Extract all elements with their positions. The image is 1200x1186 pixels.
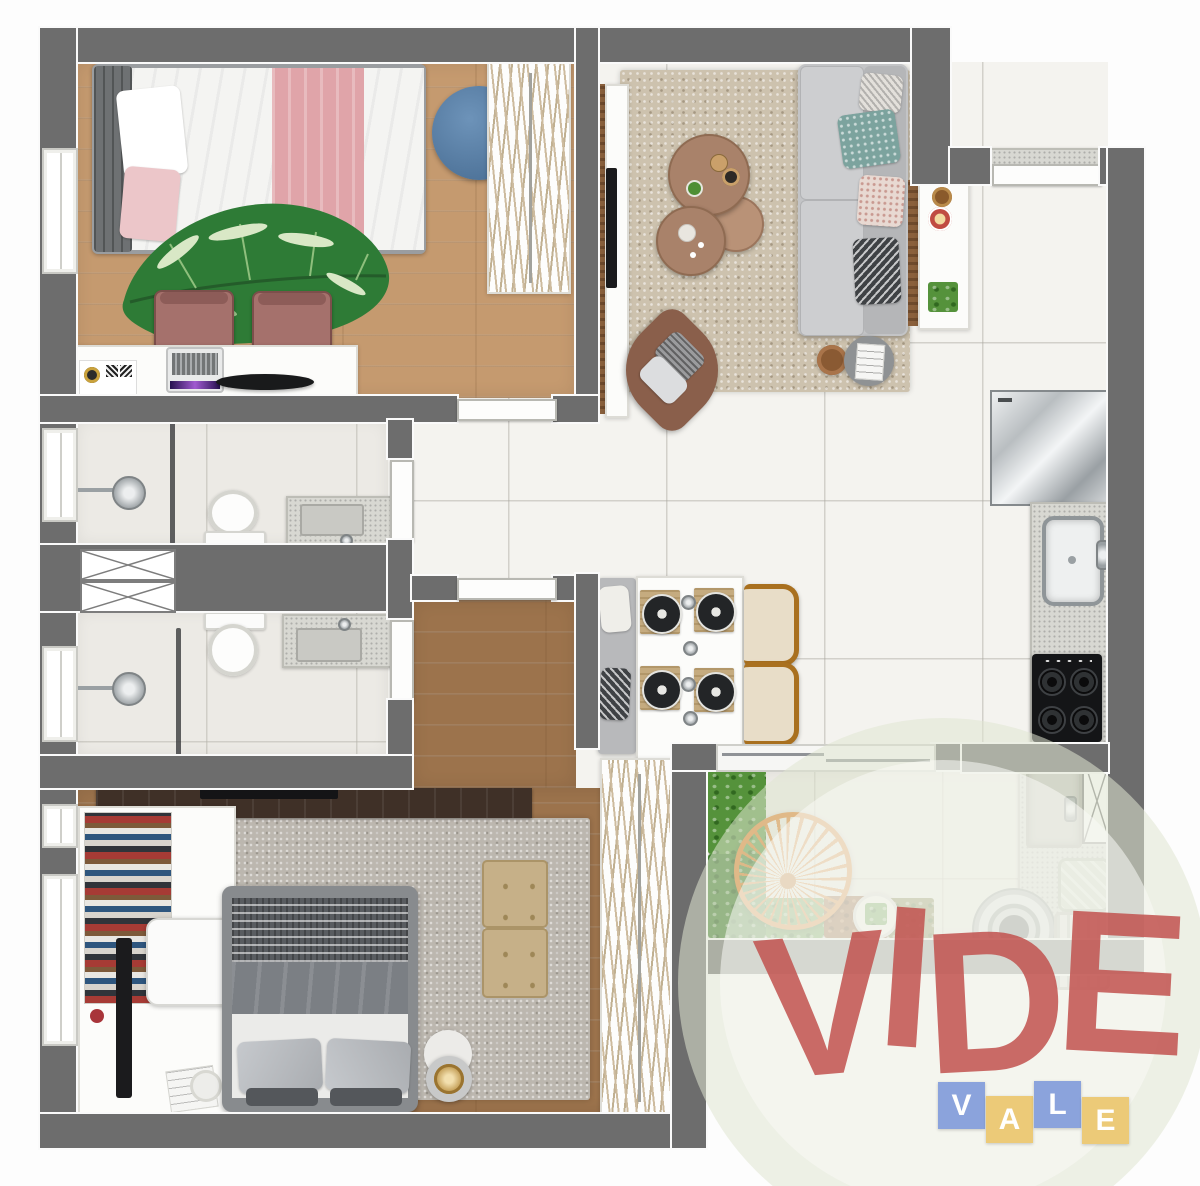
burner-1 [1038, 668, 1066, 696]
toilet-2-bowl [208, 624, 258, 676]
coffee-table-large [668, 134, 750, 216]
vale-letter-e: E [1095, 1104, 1115, 1138]
pattern-box-2 [120, 365, 132, 377]
red-flower-trinket [90, 1009, 104, 1023]
bed-pillow-silver-2 [325, 1038, 412, 1094]
sideboard-bowl-brown [932, 187, 952, 207]
wall-bedroom-bottom-b [553, 396, 598, 422]
refrigerator [990, 390, 1112, 506]
cooktop-control-dots [1042, 658, 1092, 664]
window-bathroom-1 [42, 428, 78, 522]
toilet-1-bowl [208, 490, 258, 536]
table-lamp-gold [434, 1064, 464, 1094]
vale-tile-v: V [938, 1082, 985, 1129]
vanity-1 [286, 496, 392, 549]
desk-chair-2-back [258, 293, 326, 305]
wood-side-stool [817, 345, 847, 375]
vale-letter-v: V [951, 1089, 971, 1123]
tufted-bench-2 [482, 928, 548, 998]
gas-cooktop [1032, 654, 1102, 742]
floor-master-vestibule-wood [412, 600, 576, 788]
shower-glass-2 [176, 628, 181, 756]
glass-1 [681, 595, 696, 610]
bench-pillow-knit [599, 667, 632, 720]
bed-pillow-dark-2 [330, 1088, 402, 1106]
wall-dining-vestibule [576, 574, 598, 748]
bed-pillow-dark-1 [246, 1088, 318, 1106]
glass-2 [683, 641, 698, 656]
refrigerator-handle [998, 398, 1012, 402]
bed-gray-duvet [232, 962, 408, 1014]
laptop-screen-edge [170, 381, 220, 389]
sideboard-plant [928, 282, 958, 312]
window-bathroom-2 [42, 646, 78, 742]
shower-glass-1 [170, 420, 175, 544]
tv-console-wood-edge [598, 84, 605, 414]
sideboard-plate-red [928, 207, 952, 231]
sofa-pillow-bw-knit [852, 237, 901, 305]
window-master-large [42, 874, 78, 1046]
small-bedroom-door [457, 399, 557, 421]
vale-tile-a: A [986, 1096, 1033, 1143]
vale-letter-a: A [999, 1103, 1021, 1137]
window-small-bedroom [42, 148, 78, 274]
sideboard-slat-edge [908, 180, 918, 326]
plate-3 [642, 670, 682, 710]
plate-4 [696, 672, 736, 712]
glass-3 [681, 677, 696, 692]
wall-bath-right-a [388, 420, 412, 458]
wall-top [52, 28, 950, 62]
sofa-pillow-teal [837, 108, 902, 170]
round-tray [190, 1070, 222, 1102]
vanity-2-sink [296, 628, 362, 662]
sofa [798, 64, 908, 336]
vanity-2 [282, 614, 392, 668]
bathroom-1-door [390, 460, 414, 542]
plate-1 [642, 594, 682, 634]
wall-bedroom-living [576, 28, 598, 420]
bed-pattern-blanket [232, 898, 408, 962]
master-bed [222, 886, 418, 1112]
vide-letter-d: D [919, 897, 1062, 1106]
master-bedroom-door [457, 578, 557, 600]
master-shelf-tv-panel [116, 938, 132, 1098]
sofa-pillow-knit-white [858, 72, 904, 114]
coffee-table-candle [678, 224, 696, 242]
shower-head-1 [112, 476, 146, 510]
glass-4 [683, 711, 698, 726]
wall-hall-master-a [412, 576, 457, 600]
shower-head-2 [112, 672, 146, 706]
vale-tile-e: E [1082, 1097, 1129, 1144]
kitchen-sink [1042, 516, 1104, 606]
watermark-vide: V I D E [756, 890, 1178, 1092]
book-on-table [855, 343, 885, 381]
vide-letter-e: E [1051, 879, 1183, 1087]
pattern-box-1 [106, 365, 118, 377]
dining-chair-2 [744, 662, 799, 746]
wall-bath-right-b [388, 540, 412, 618]
dining-chair-1 [744, 584, 799, 666]
wall-balcony-top-a [672, 744, 716, 770]
coffee-table-cup-2 [722, 168, 740, 186]
wall-bath-right-c [388, 700, 412, 756]
wall-bottom-master [40, 1114, 706, 1148]
wall-living-right [912, 28, 950, 184]
desk-chair-1 [154, 290, 234, 352]
window-master-small [42, 804, 78, 848]
bench-pillow-white [598, 585, 632, 633]
coffee-table-green-bowl [686, 180, 703, 197]
vale-tile-l: L [1034, 1081, 1081, 1128]
gray-side-table [844, 336, 894, 386]
vanity-2-faucet [338, 618, 351, 631]
tufted-bench-1 [482, 860, 548, 928]
curved-monitor [216, 374, 314, 390]
wall-bedroom-bottom-a [40, 396, 457, 422]
vale-letter-l: L [1048, 1088, 1066, 1122]
burner-2 [1070, 668, 1098, 696]
sink-drain [1068, 556, 1076, 564]
laptop-keyboard [172, 353, 218, 375]
tv-screen [606, 168, 617, 288]
flower-dot-1 [698, 242, 704, 248]
floor-plan-canvas: V I D E V A L E [0, 0, 1200, 1186]
vanity-1-sink [300, 504, 364, 536]
coffee-table-medium [656, 206, 726, 276]
flower-dot-2 [690, 252, 696, 258]
service-shaft-2-face [80, 581, 176, 613]
small-bedroom-wardrobe-hangers [487, 62, 571, 294]
bed-pillow-silver-1 [237, 1038, 324, 1094]
plate-2 [696, 592, 736, 632]
vide-letter-v: V [749, 899, 888, 1111]
master-wardrobe-hangers [600, 758, 676, 1118]
desk-chair-2 [252, 291, 332, 353]
camera-trinket [84, 367, 100, 383]
sofa-pillow-blush [856, 174, 905, 227]
dining-bench [598, 578, 636, 754]
bed-pillow-white [116, 85, 189, 179]
burner-4 [1070, 706, 1098, 734]
desk-chair-1-back [160, 292, 228, 304]
service-shaft-1-face [80, 549, 176, 581]
entry-door-leaf [992, 164, 1102, 186]
bathroom-2-door [390, 620, 414, 702]
desk-gadgets-tray [79, 360, 137, 396]
wall-entry-left [950, 148, 990, 184]
laptop [166, 347, 224, 393]
burner-3 [1038, 706, 1066, 734]
wall-bath2-bottom [40, 756, 412, 788]
